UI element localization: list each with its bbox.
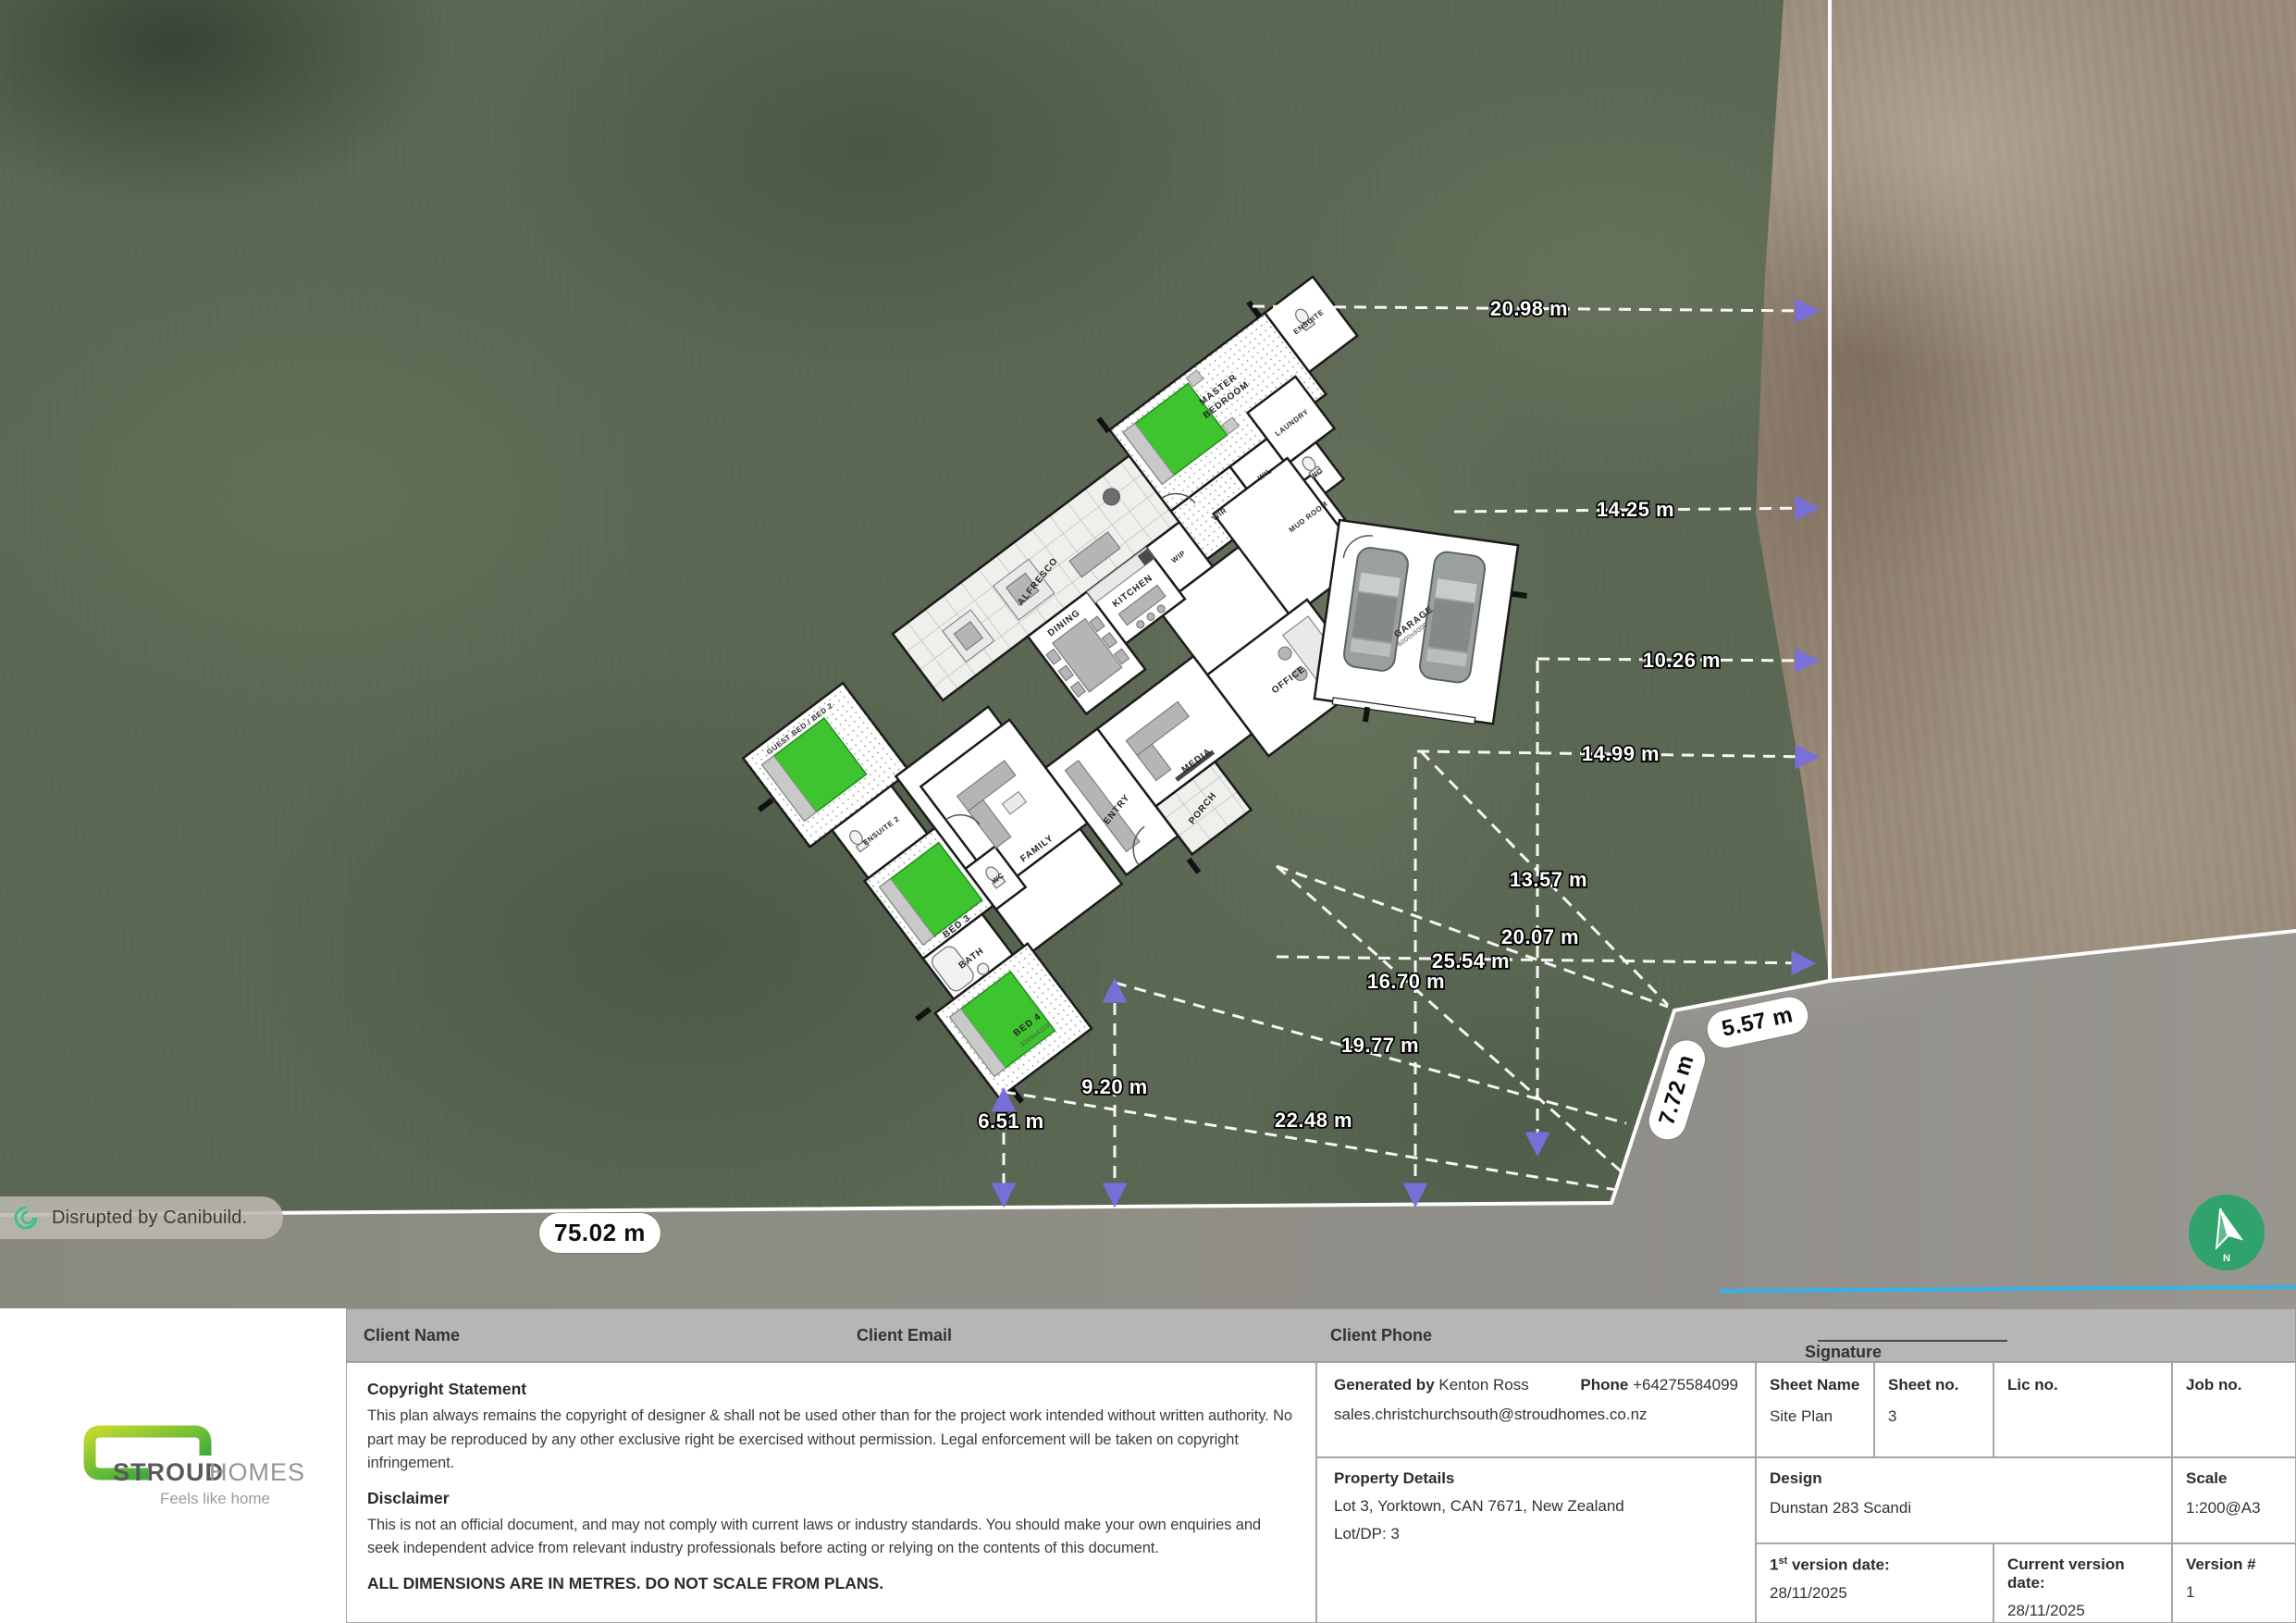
version-number-value: 1 [2186, 1583, 2282, 1602]
design-label: Design [1770, 1469, 2158, 1488]
signature-line [1818, 1340, 2007, 1342]
dim-6-51: 6.51 m [978, 1109, 1044, 1133]
job-no-label: Job no. [2186, 1376, 2282, 1394]
version-number-cell: Version # 1 [2172, 1543, 2296, 1623]
north-letter: N [2223, 1253, 2230, 1264]
floorplan-garage: GARAGE 6000x6000 [1312, 520, 1533, 741]
first-version-value: 28/11/2025 [1770, 1584, 1980, 1603]
copyright-title: Copyright Statement [367, 1380, 1295, 1399]
dim-14-25: 14.25 m [1597, 498, 1674, 521]
dimensions-note: ALL DIMENSIONS ARE IN METRES. DO NOT SCA… [367, 1574, 1295, 1593]
email-value: sales.christchurchsouth@stroudhomes.co.n… [1334, 1406, 1738, 1424]
logo-brand-light: HOMES [209, 1458, 305, 1486]
first-version-sup: st [1778, 1555, 1787, 1567]
property-address: Lot 3, Yorktown, CAN 7671, New Zealand [1334, 1497, 1738, 1516]
current-version-label: Current version date: [2007, 1555, 2158, 1592]
current-version-value: 28/11/2025 [2007, 1602, 2158, 1620]
dim-20-98: 20.98 m [1490, 297, 1568, 320]
dim-20-07: 20.07 m [1501, 925, 1579, 948]
sheet-name-value: Site Plan [1770, 1407, 1860, 1426]
first-version-label: version date: [1787, 1556, 1890, 1574]
current-version-cell: Current version date: 28/11/2025 [1994, 1543, 2172, 1623]
dimension-labels: 20.98 m 14.25 m 10.26 m 14.99 m 13.57 m … [978, 297, 1721, 1133]
job-no-cell: Job no. [2172, 1362, 2296, 1457]
canibuild-icon [12, 1203, 42, 1233]
dim-9-20: 9.20 m [1081, 1075, 1148, 1098]
generated-by-label: Generated by [1334, 1376, 1435, 1394]
dim-19-77: 19.77 m [1341, 1034, 1419, 1057]
disclaimer-title: Disclaimer [367, 1489, 1295, 1508]
client-name-label: Client Name [364, 1326, 460, 1345]
site-plan-sheet: ALFRESCO MASTER BEDROOM ENSUITE WIR WIL … [0, 0, 2296, 1623]
property-lot-dp: Lot/DP: 3 [1334, 1525, 1738, 1543]
property-title: Property Details [1334, 1469, 1738, 1488]
design-value: Dunstan 283 Scandi [1770, 1499, 2158, 1518]
sheet-name-label: Sheet Name [1770, 1376, 1860, 1394]
disclaimer-body: This is not an official document, and ma… [367, 1514, 1295, 1561]
phone-value: +64275584099 [1633, 1376, 1738, 1394]
property-details-cell: Property Details Lot 3, Yorktown, CAN 76… [1316, 1457, 1756, 1623]
sheet-no-cell: Sheet no. 3 [1874, 1362, 1994, 1457]
phone-label: Phone [1580, 1376, 1628, 1394]
plan-annotations: ALFRESCO MASTER BEDROOM ENSUITE WIR WIL … [0, 0, 2296, 1308]
generated-by-value: Kenton Ross [1438, 1376, 1528, 1394]
scale-cell: Scale 1:200@A3 [2172, 1457, 2296, 1543]
client-email-label: Client Email [857, 1326, 952, 1345]
sheet-no-value: 3 [1888, 1407, 1980, 1426]
generated-by-cell: Generated by Kenton Ross Phone +64275584… [1316, 1362, 1756, 1457]
canibuild-badge: Disrupted by Canibuild. [0, 1196, 283, 1239]
scale-value: 1:200@A3 [2186, 1499, 2282, 1518]
copyright-body: This plan always remains the copyright o… [367, 1405, 1295, 1476]
lic-no-label: Lic no. [2007, 1376, 2158, 1394]
boundary-length-pill: 75.02 m [539, 1213, 660, 1253]
logo-brand-bold: STROUD [113, 1458, 224, 1486]
client-phone-label: Client Phone [1330, 1326, 1432, 1345]
dim-13-57: 13.57 m [1510, 868, 1587, 891]
dim-14-99: 14.99 m [1582, 742, 1660, 765]
dim-10-26: 10.26 m [1643, 649, 1721, 672]
titleblock-header-row: Client Name Client Email Client Phone Si… [346, 1308, 2296, 1362]
first-version-cell: 1st version date: 28/11/2025 [1756, 1543, 1994, 1623]
version-number-label: Version # [2186, 1555, 2282, 1574]
satellite-map: ALFRESCO MASTER BEDROOM ENSUITE WIR WIL … [0, 0, 2296, 1308]
dim-22-48: 22.48 m [1275, 1109, 1352, 1132]
sheet-name-cell: Sheet Name Site Plan [1756, 1362, 1874, 1457]
lic-no-cell: Lic no. [1994, 1362, 2172, 1457]
stroud-homes-logo: STROUD HOMES Feels like home [56, 1414, 333, 1525]
dim-16-70: 16.70 m [1367, 970, 1445, 993]
logo-tagline: Feels like home [160, 1490, 270, 1507]
design-cell: Design Dunstan 283 Scandi [1756, 1457, 2172, 1543]
north-arrow: N [2189, 1195, 2265, 1270]
sheet-no-label: Sheet no. [1888, 1376, 1980, 1394]
copyright-cell: Copyright Statement This plan always rem… [346, 1362, 1316, 1623]
canibuild-badge-text: Disrupted by Canibuild. [52, 1208, 247, 1229]
scale-label: Scale [2186, 1469, 2282, 1488]
